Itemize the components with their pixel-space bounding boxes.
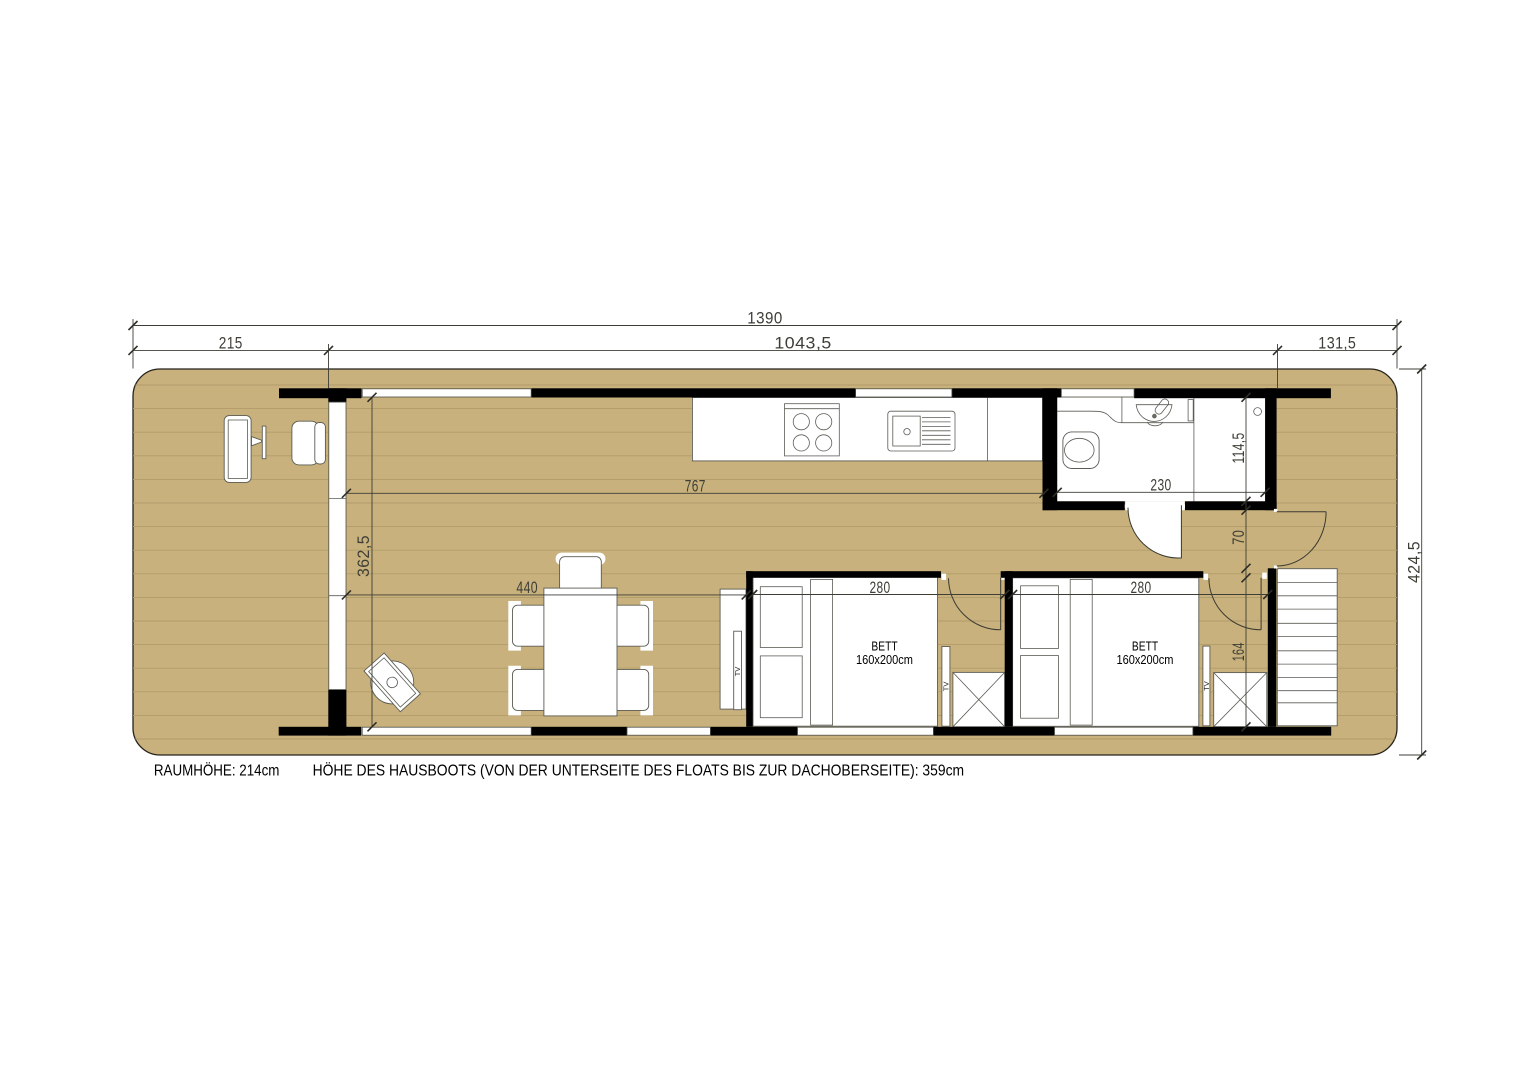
svg-text:TV: TV [1202, 681, 1211, 691]
svg-text:160x200cm: 160x200cm [856, 652, 913, 667]
svg-text:1043,5: 1043,5 [774, 334, 832, 352]
svg-text:1390: 1390 [747, 310, 783, 328]
svg-text:230: 230 [1150, 476, 1171, 494]
svg-text:164: 164 [1230, 642, 1248, 661]
svg-text:215: 215 [219, 334, 243, 352]
svg-text:280: 280 [870, 579, 891, 597]
svg-text:160x200cm: 160x200cm [1117, 652, 1174, 667]
svg-text:114,5: 114,5 [1230, 433, 1248, 464]
svg-text:424,5: 424,5 [1406, 541, 1424, 583]
svg-text:TV: TV [733, 667, 742, 677]
svg-text:767: 767 [685, 477, 706, 495]
svg-text:131,5: 131,5 [1318, 334, 1356, 352]
svg-text:70: 70 [1230, 530, 1248, 545]
svg-text:280: 280 [1131, 579, 1152, 597]
svg-text:RAUMHÖHE: 214cm: RAUMHÖHE: 214cm [154, 762, 280, 780]
svg-text:362,5: 362,5 [355, 535, 373, 577]
svg-text:HÖHE DES HAUSBOOTS (VON DER UN: HÖHE DES HAUSBOOTS (VON DER UNTERSEITE D… [313, 762, 965, 780]
svg-text:TV: TV [942, 682, 951, 692]
svg-text:440: 440 [516, 579, 538, 597]
